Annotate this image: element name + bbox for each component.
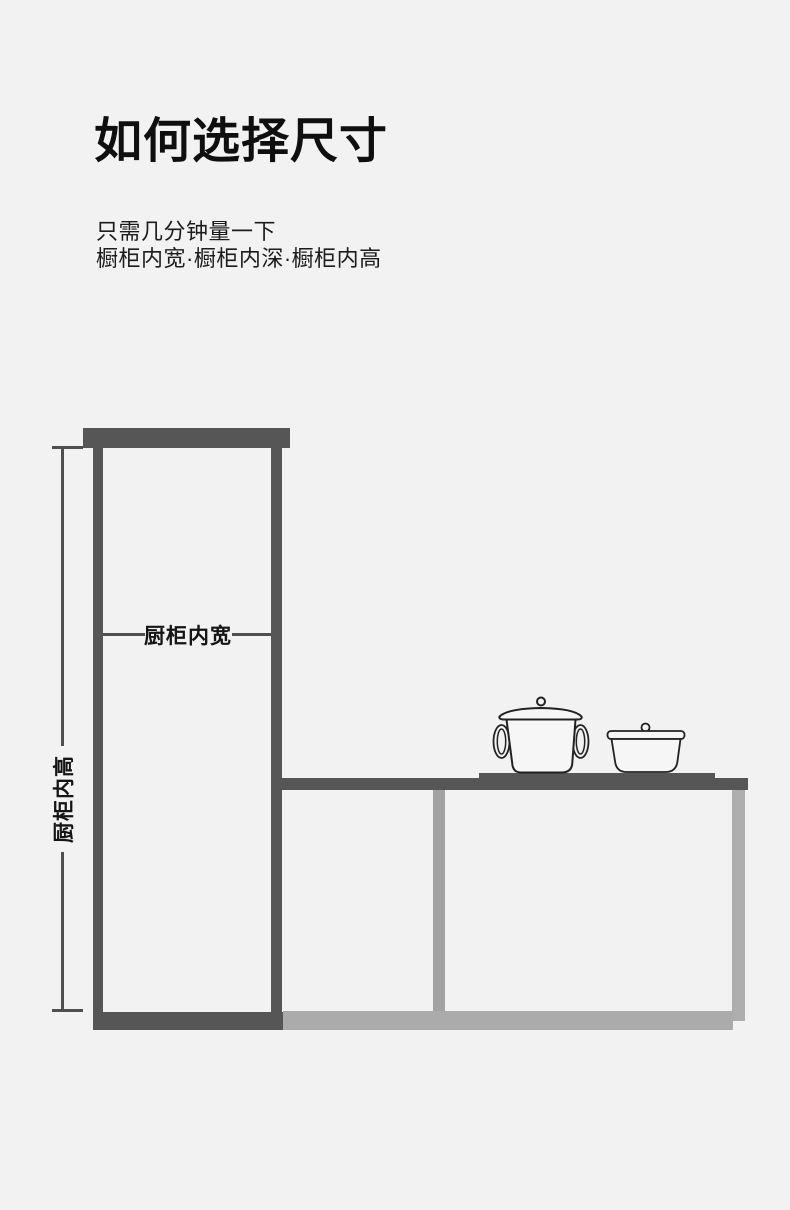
height-dimension-bottom-tick <box>52 1009 83 1012</box>
height-dimension-line-lower <box>61 852 64 1011</box>
inner-width-label: 厨柜内宽 <box>144 620 232 650</box>
counter-middle-divider <box>433 790 445 1012</box>
height-dimension-top-tick <box>52 446 83 449</box>
cookware-illustration <box>480 688 700 780</box>
infographic-page: 如何选择尺寸 只需几分钟量一下 橱柜内宽·橱柜内深·橱柜内高 厨柜内高 厨柜内宽 <box>0 0 790 1210</box>
width-dimension-line-left <box>103 633 145 636</box>
width-dimension-line-right <box>232 633 271 636</box>
pot-small-icon <box>608 724 685 773</box>
tall-cabinet-top-panel <box>83 428 290 448</box>
subtitle-line-2: 橱柜内宽·橱柜内深·橱柜内高 <box>96 245 382 272</box>
counter-base-panel <box>283 1011 733 1030</box>
page-title: 如何选择尺寸 <box>94 116 388 169</box>
page-subtitle: 只需几分钟量一下 橱柜内宽·橱柜内深·橱柜内高 <box>96 218 382 272</box>
subtitle-line-1: 只需几分钟量一下 <box>96 218 382 245</box>
inner-height-label: 厨柜内高 <box>48 755 78 843</box>
counter-right-panel <box>732 790 745 1021</box>
pot-large-icon <box>494 698 589 773</box>
tall-cabinet-right-side <box>271 448 282 1012</box>
tall-cabinet-base-panel <box>93 1012 283 1030</box>
height-dimension-line-upper <box>61 447 64 746</box>
tall-cabinet-left-side <box>93 448 103 1012</box>
